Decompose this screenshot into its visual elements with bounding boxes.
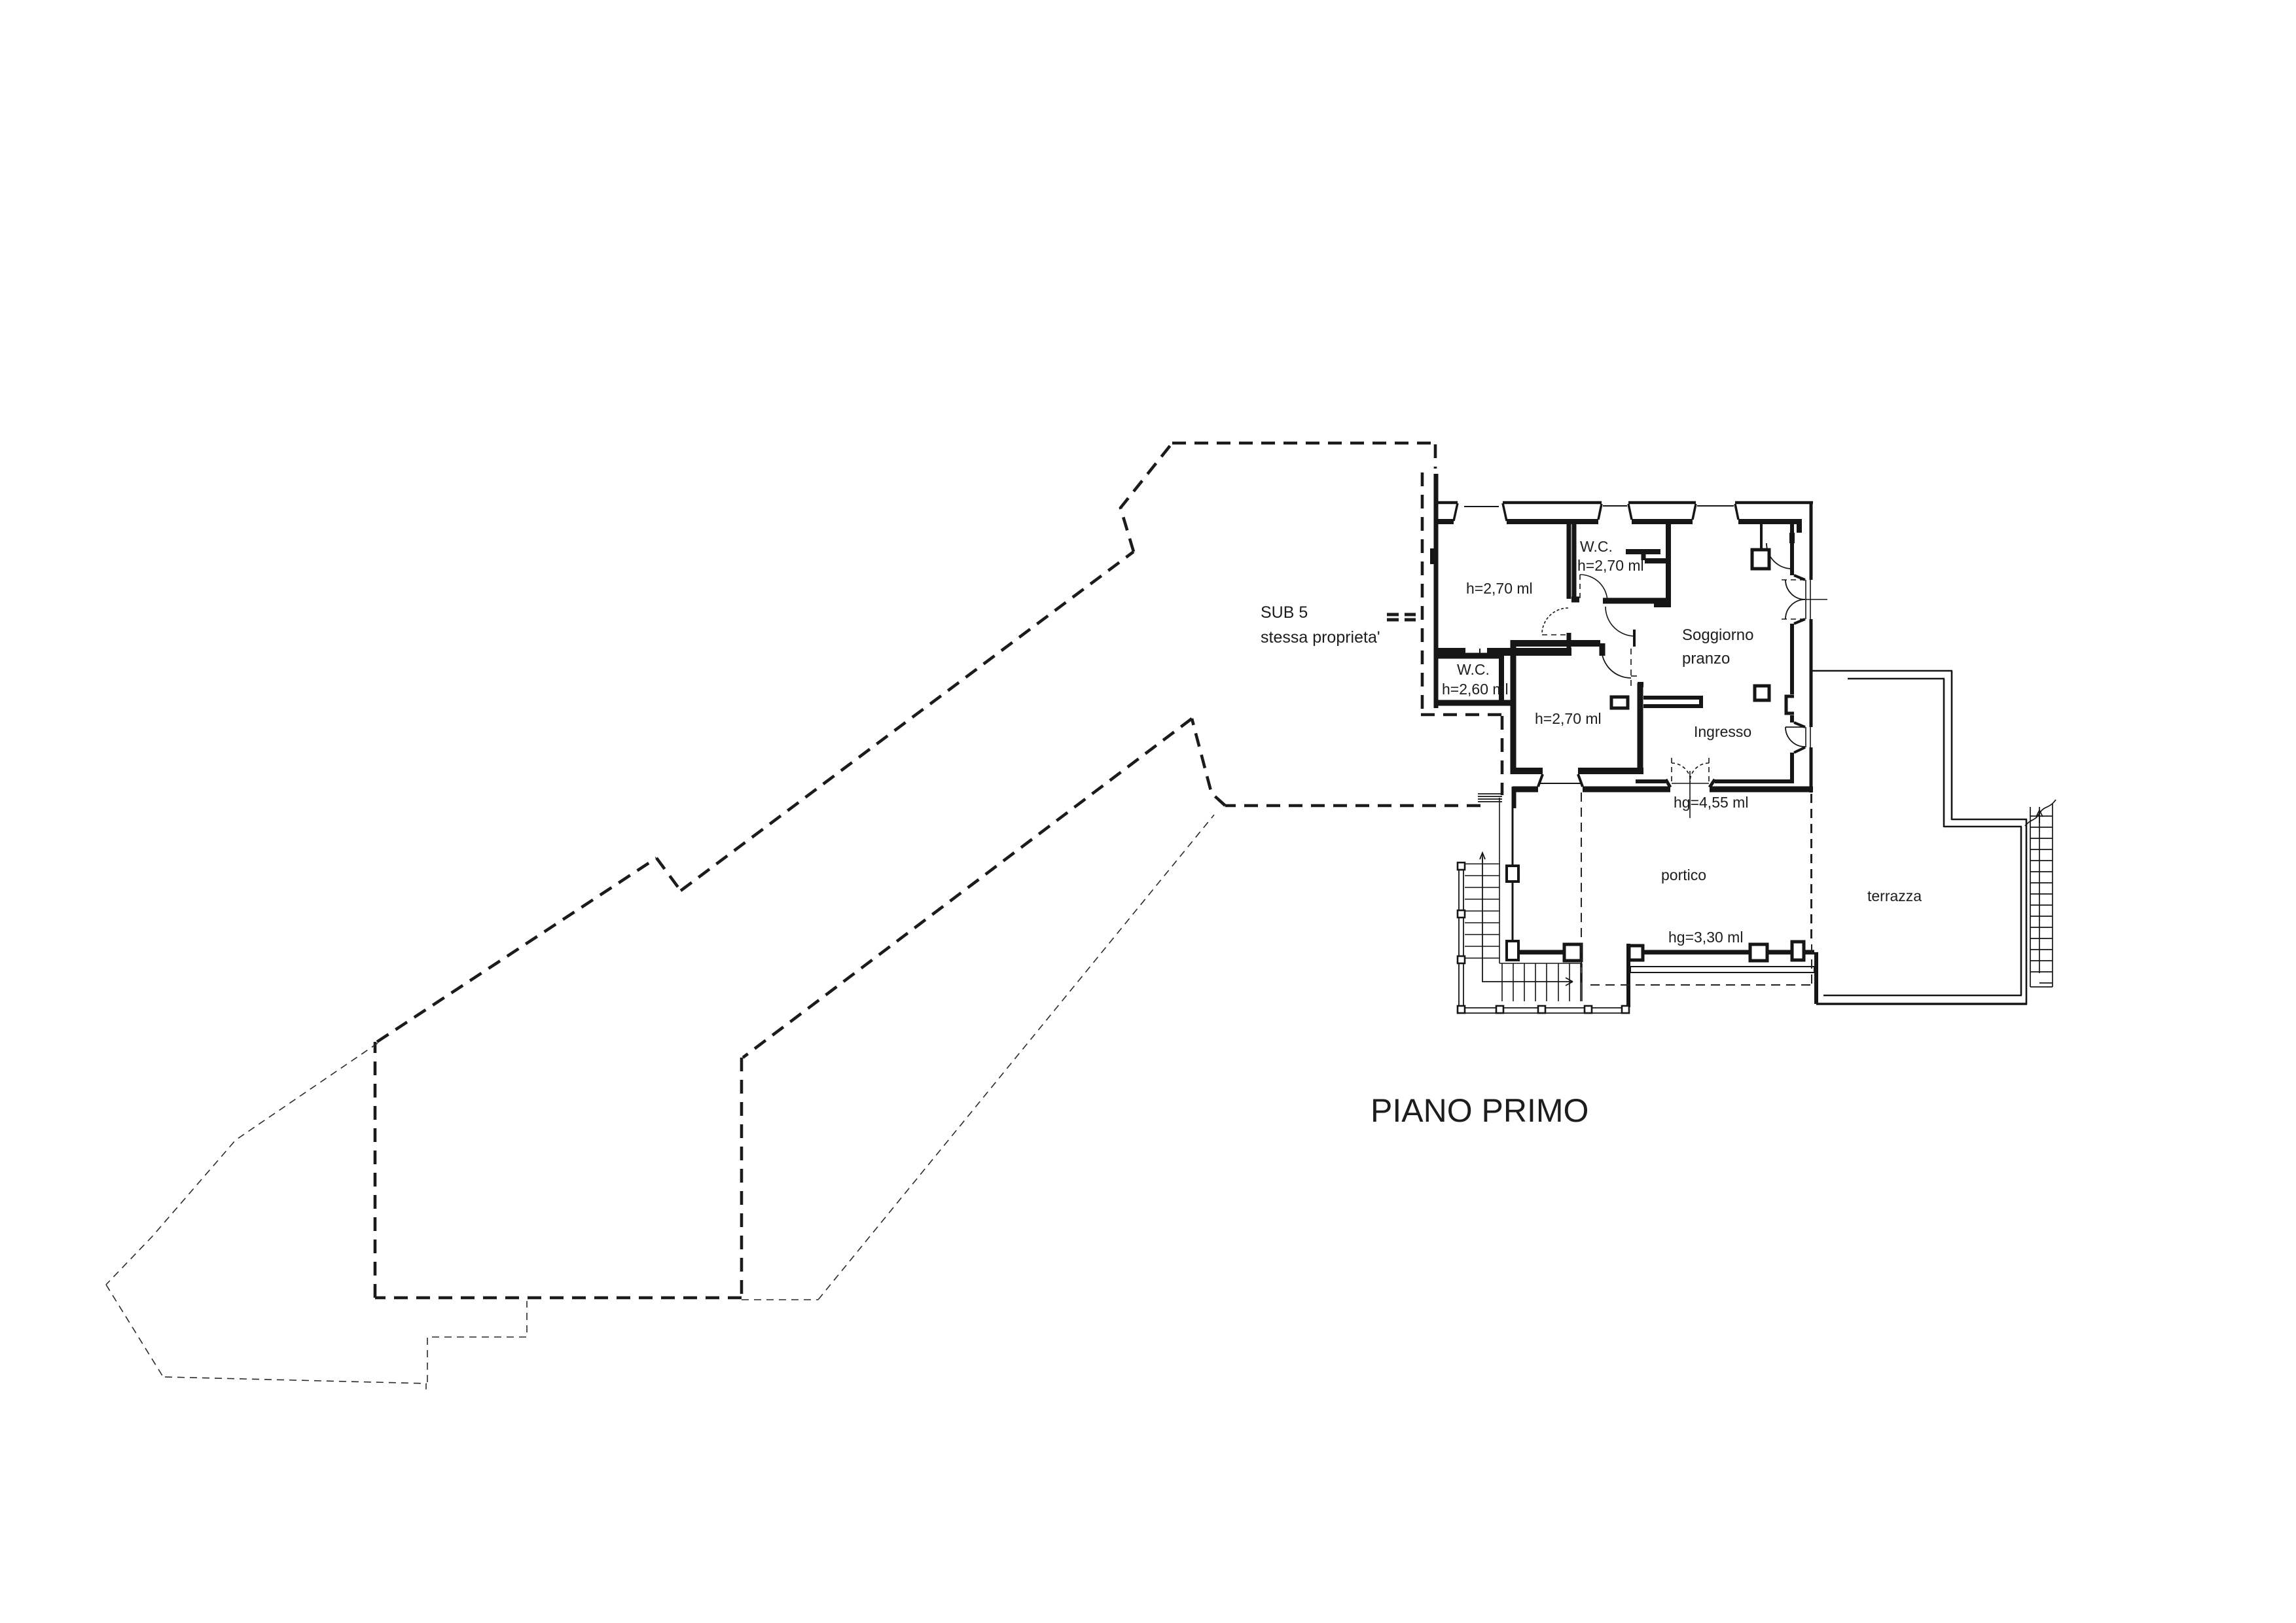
svg-text:Soggiorno: Soggiorno xyxy=(1682,626,1753,644)
svg-text:h=2,70 ml: h=2,70 ml xyxy=(1535,710,1602,727)
svg-text:SUB 5: SUB 5 xyxy=(1261,603,1308,622)
svg-text:W.C.: W.C. xyxy=(1580,538,1613,555)
svg-text:h=2,70 ml: h=2,70 ml xyxy=(1577,557,1644,574)
svg-text:hg=3,30 ml: hg=3,30 ml xyxy=(1668,929,1743,946)
svg-text:h=2,60 ml: h=2,60 ml xyxy=(1442,681,1509,698)
svg-text:pranzo: pranzo xyxy=(1682,650,1730,668)
svg-text:stessa proprieta': stessa proprieta' xyxy=(1261,628,1380,647)
svg-text:h=2,70 ml: h=2,70 ml xyxy=(1466,580,1533,597)
svg-text:Ingresso: Ingresso xyxy=(1694,723,1751,740)
svg-text:terrazza: terrazza xyxy=(1867,887,1922,904)
svg-text:PIANO PRIMO: PIANO PRIMO xyxy=(1371,1092,1588,1129)
svg-text:hg=4,55 ml: hg=4,55 ml xyxy=(1674,794,1748,811)
svg-text:portico: portico xyxy=(1661,866,1706,883)
svg-text:W.C.: W.C. xyxy=(1457,661,1490,678)
